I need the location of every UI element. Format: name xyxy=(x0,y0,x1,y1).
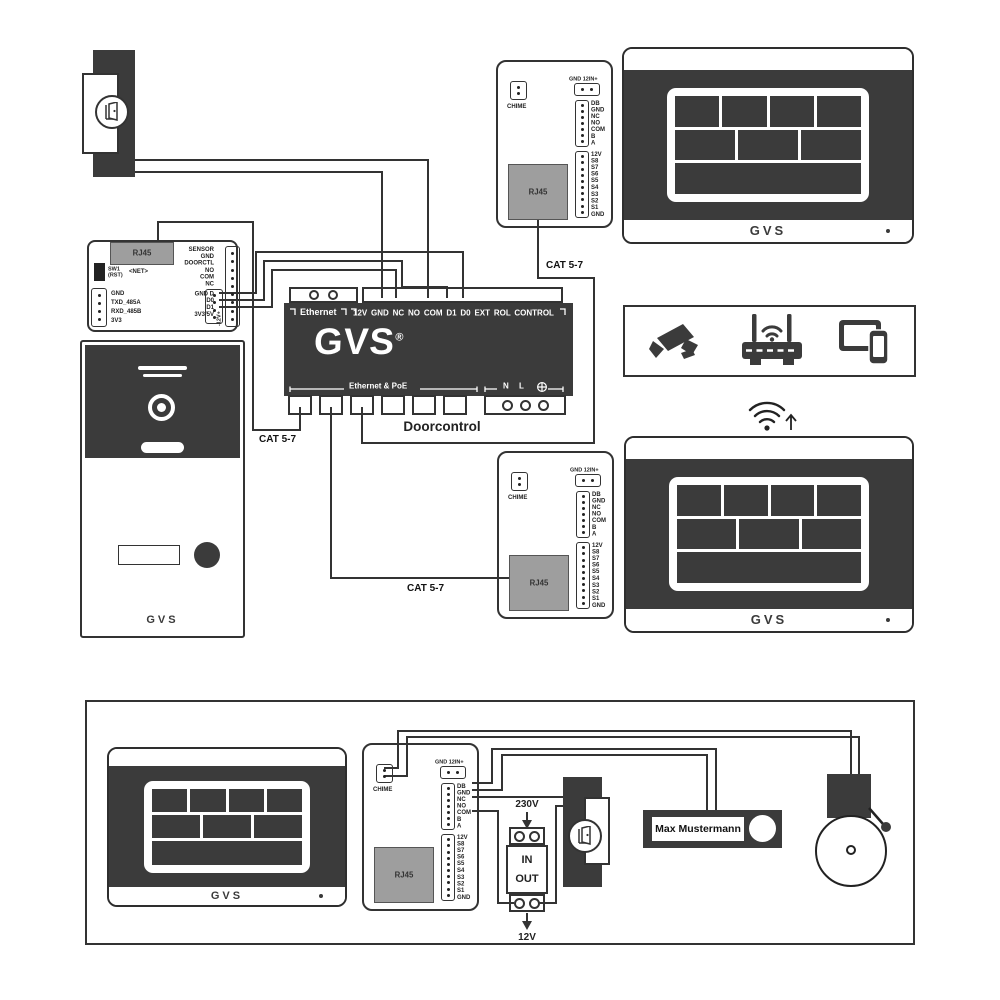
bell-push-button xyxy=(749,815,776,842)
indoor-station-module-1: CHIME GND 12IN+ DBGNDNCNOCOMBA 12VS8S7S6… xyxy=(496,60,613,228)
monitor-menu-grid xyxy=(144,781,309,873)
doorcontrol-body: Ethernet 12V GND NC NO COM D1 D0 EXT ROL… xyxy=(284,303,573,396)
indoor-station-module-2: CHIME GND 12IN+ DBGNDNCNOCOMBA 12VS8S7S6… xyxy=(497,451,614,619)
scene-pin-labels: 12VS8S7S6S5S4S3S2S1GND xyxy=(591,151,615,218)
terminal-strip xyxy=(362,287,563,303)
name-window xyxy=(118,545,180,565)
serial-pin-labels: GNDTXD_485ARXD_485B3V3 xyxy=(111,288,153,327)
serial-connector xyxy=(91,288,107,327)
speaker-slot-2 xyxy=(143,374,182,377)
earth-ground-icon xyxy=(536,381,548,393)
indoor-monitor-1: GVS xyxy=(622,47,914,244)
net-label: <NET> xyxy=(129,268,148,275)
reset-switch xyxy=(94,263,105,281)
power-12v-label: -12V+ xyxy=(216,311,222,326)
supply-output-terminals xyxy=(509,894,545,912)
monitor-bottom-band: GVS xyxy=(626,609,912,631)
rj45-port: RJ45 xyxy=(374,847,434,903)
cat5-label-3: CAT 5-7 xyxy=(407,583,444,594)
power-connector xyxy=(574,83,600,96)
monitor-menu-grid xyxy=(669,477,869,591)
scene-connector xyxy=(576,542,590,609)
gong-center xyxy=(846,845,856,855)
gvs-logo-large: GVS® xyxy=(313,323,405,360)
gvs-logo: GVS xyxy=(750,223,786,238)
scene-pin-labels: 12VS8S7S6S5S4S3S2S1GND xyxy=(592,542,616,609)
rst-label: (RST) xyxy=(108,272,123,278)
mains-terminal-block xyxy=(484,395,566,415)
terminal-labels: 12V GND NC NO COM D1 D0 EXT ROL CONTROL xyxy=(353,309,554,318)
wifi-signal-icon xyxy=(744,386,802,434)
supply-body: IN OUT xyxy=(506,845,548,894)
chime-clapper xyxy=(863,802,895,834)
gvs-logo: GVS xyxy=(211,890,243,902)
chime-label: CHIME xyxy=(507,103,526,110)
chime-label: CHIME xyxy=(508,494,527,501)
monitor-bottom-band: GVS xyxy=(624,220,912,242)
monitor-top-band xyxy=(109,749,345,766)
relay-connector xyxy=(441,783,455,830)
monitor-screen xyxy=(624,70,912,220)
network-devices-box xyxy=(623,305,916,377)
mains-voltage-label: 230V xyxy=(507,799,547,810)
cat5-label-2: CAT 5-7 xyxy=(546,260,583,271)
power-header: GND 12IN+ xyxy=(435,759,464,765)
mains-labels: N L xyxy=(503,382,528,391)
monitor-screen xyxy=(109,766,345,887)
doorcontrol-title: Doorcontrol xyxy=(342,419,542,434)
relay-pin-labels: DBGNDNCNOCOMBA xyxy=(591,100,615,147)
resident-name: Max Mustermann xyxy=(652,817,744,841)
power-header: GND 12IN+ xyxy=(570,467,599,473)
poe-terminal-4 xyxy=(381,395,405,415)
mic-hole xyxy=(886,618,890,622)
poe-terminal-5 xyxy=(412,395,436,415)
poe-terminal-3 xyxy=(350,395,374,415)
cat5-label-1: CAT 5-7 xyxy=(259,434,296,445)
monitor-menu-grid xyxy=(667,88,869,202)
camera-lens-icon xyxy=(148,394,175,421)
scene-connector xyxy=(575,151,589,218)
door-open-icon xyxy=(568,819,602,853)
scene-connector xyxy=(441,834,455,901)
monitor-top-band xyxy=(624,49,912,70)
poe-terminal-6 xyxy=(443,395,467,415)
io-connector xyxy=(225,246,240,327)
relay-connector xyxy=(575,100,589,147)
relay-pin-labels: DBGNDNCNOCOMBA xyxy=(457,783,481,830)
indoor-monitor-2: GVS xyxy=(624,436,914,633)
io-pin-labels: SENSORGNDDOORCTLNOCOMNC xyxy=(172,246,214,288)
wifi-router-icon xyxy=(740,312,804,370)
monitor-top-band xyxy=(626,438,912,459)
ethernet-label: Ethernet xyxy=(300,308,337,318)
door-open-icon xyxy=(95,95,129,129)
mobile-devices-icon xyxy=(838,313,892,369)
door-station: GVS xyxy=(80,340,245,638)
relay-connector xyxy=(576,491,590,538)
power-connector xyxy=(575,474,601,487)
network-module: RJ45 <NET> SW1 (RST) GNDTXD_485ARXD_485B… xyxy=(87,240,238,332)
poe-terminal-1 xyxy=(288,395,312,415)
output-voltage-label: 12V xyxy=(507,932,547,943)
rj45-port: RJ45 xyxy=(110,242,174,265)
indoor-station-module-3: CHIME GND 12IN+ DBGNDNCNOCOMBA 12VS8S7S6… xyxy=(362,743,479,911)
poe-label: Ethernet & PoE xyxy=(349,382,407,391)
power-connector xyxy=(440,766,466,779)
chime-connector xyxy=(510,81,527,100)
gvs-logo: GVS xyxy=(82,614,243,626)
chime-connector xyxy=(511,472,528,491)
supply-in-label: IN xyxy=(522,854,533,866)
chime-label: CHIME xyxy=(373,786,392,793)
gvs-logo: GVS xyxy=(751,612,787,627)
supply-out-label: OUT xyxy=(515,873,538,885)
bell-button-nameplate: Max Mustermann xyxy=(643,810,782,848)
relay-pin-labels: DBGNDNCNOCOMBA xyxy=(592,491,616,538)
cctv-camera-icon xyxy=(647,316,705,366)
call-button xyxy=(194,542,220,568)
sensor-window xyxy=(141,442,184,453)
monitor-screen xyxy=(626,459,912,609)
doorbell-chime xyxy=(815,770,899,894)
indoor-monitor-3: GVS xyxy=(107,747,347,907)
rj45-port: RJ45 xyxy=(509,555,569,611)
mic-hole xyxy=(886,229,890,233)
scene-pin-labels: 12VS8S7S6S5S4S3S2S1GND xyxy=(457,834,481,901)
chime-connector xyxy=(376,764,393,783)
rj45-port: RJ45 xyxy=(508,164,568,220)
supply-input-terminals xyxy=(509,827,545,845)
wiring-diagram: RJ45 <NET> SW1 (RST) GNDTXD_485ARXD_485B… xyxy=(0,0,1000,1000)
monitor-bottom-band: GVS xyxy=(109,887,345,905)
speaker-slot xyxy=(138,366,187,370)
mic-hole xyxy=(319,894,323,898)
power-header: GND 12IN+ xyxy=(569,76,598,82)
poe-terminal-2 xyxy=(319,395,343,415)
ethernet-port-block xyxy=(289,287,358,303)
